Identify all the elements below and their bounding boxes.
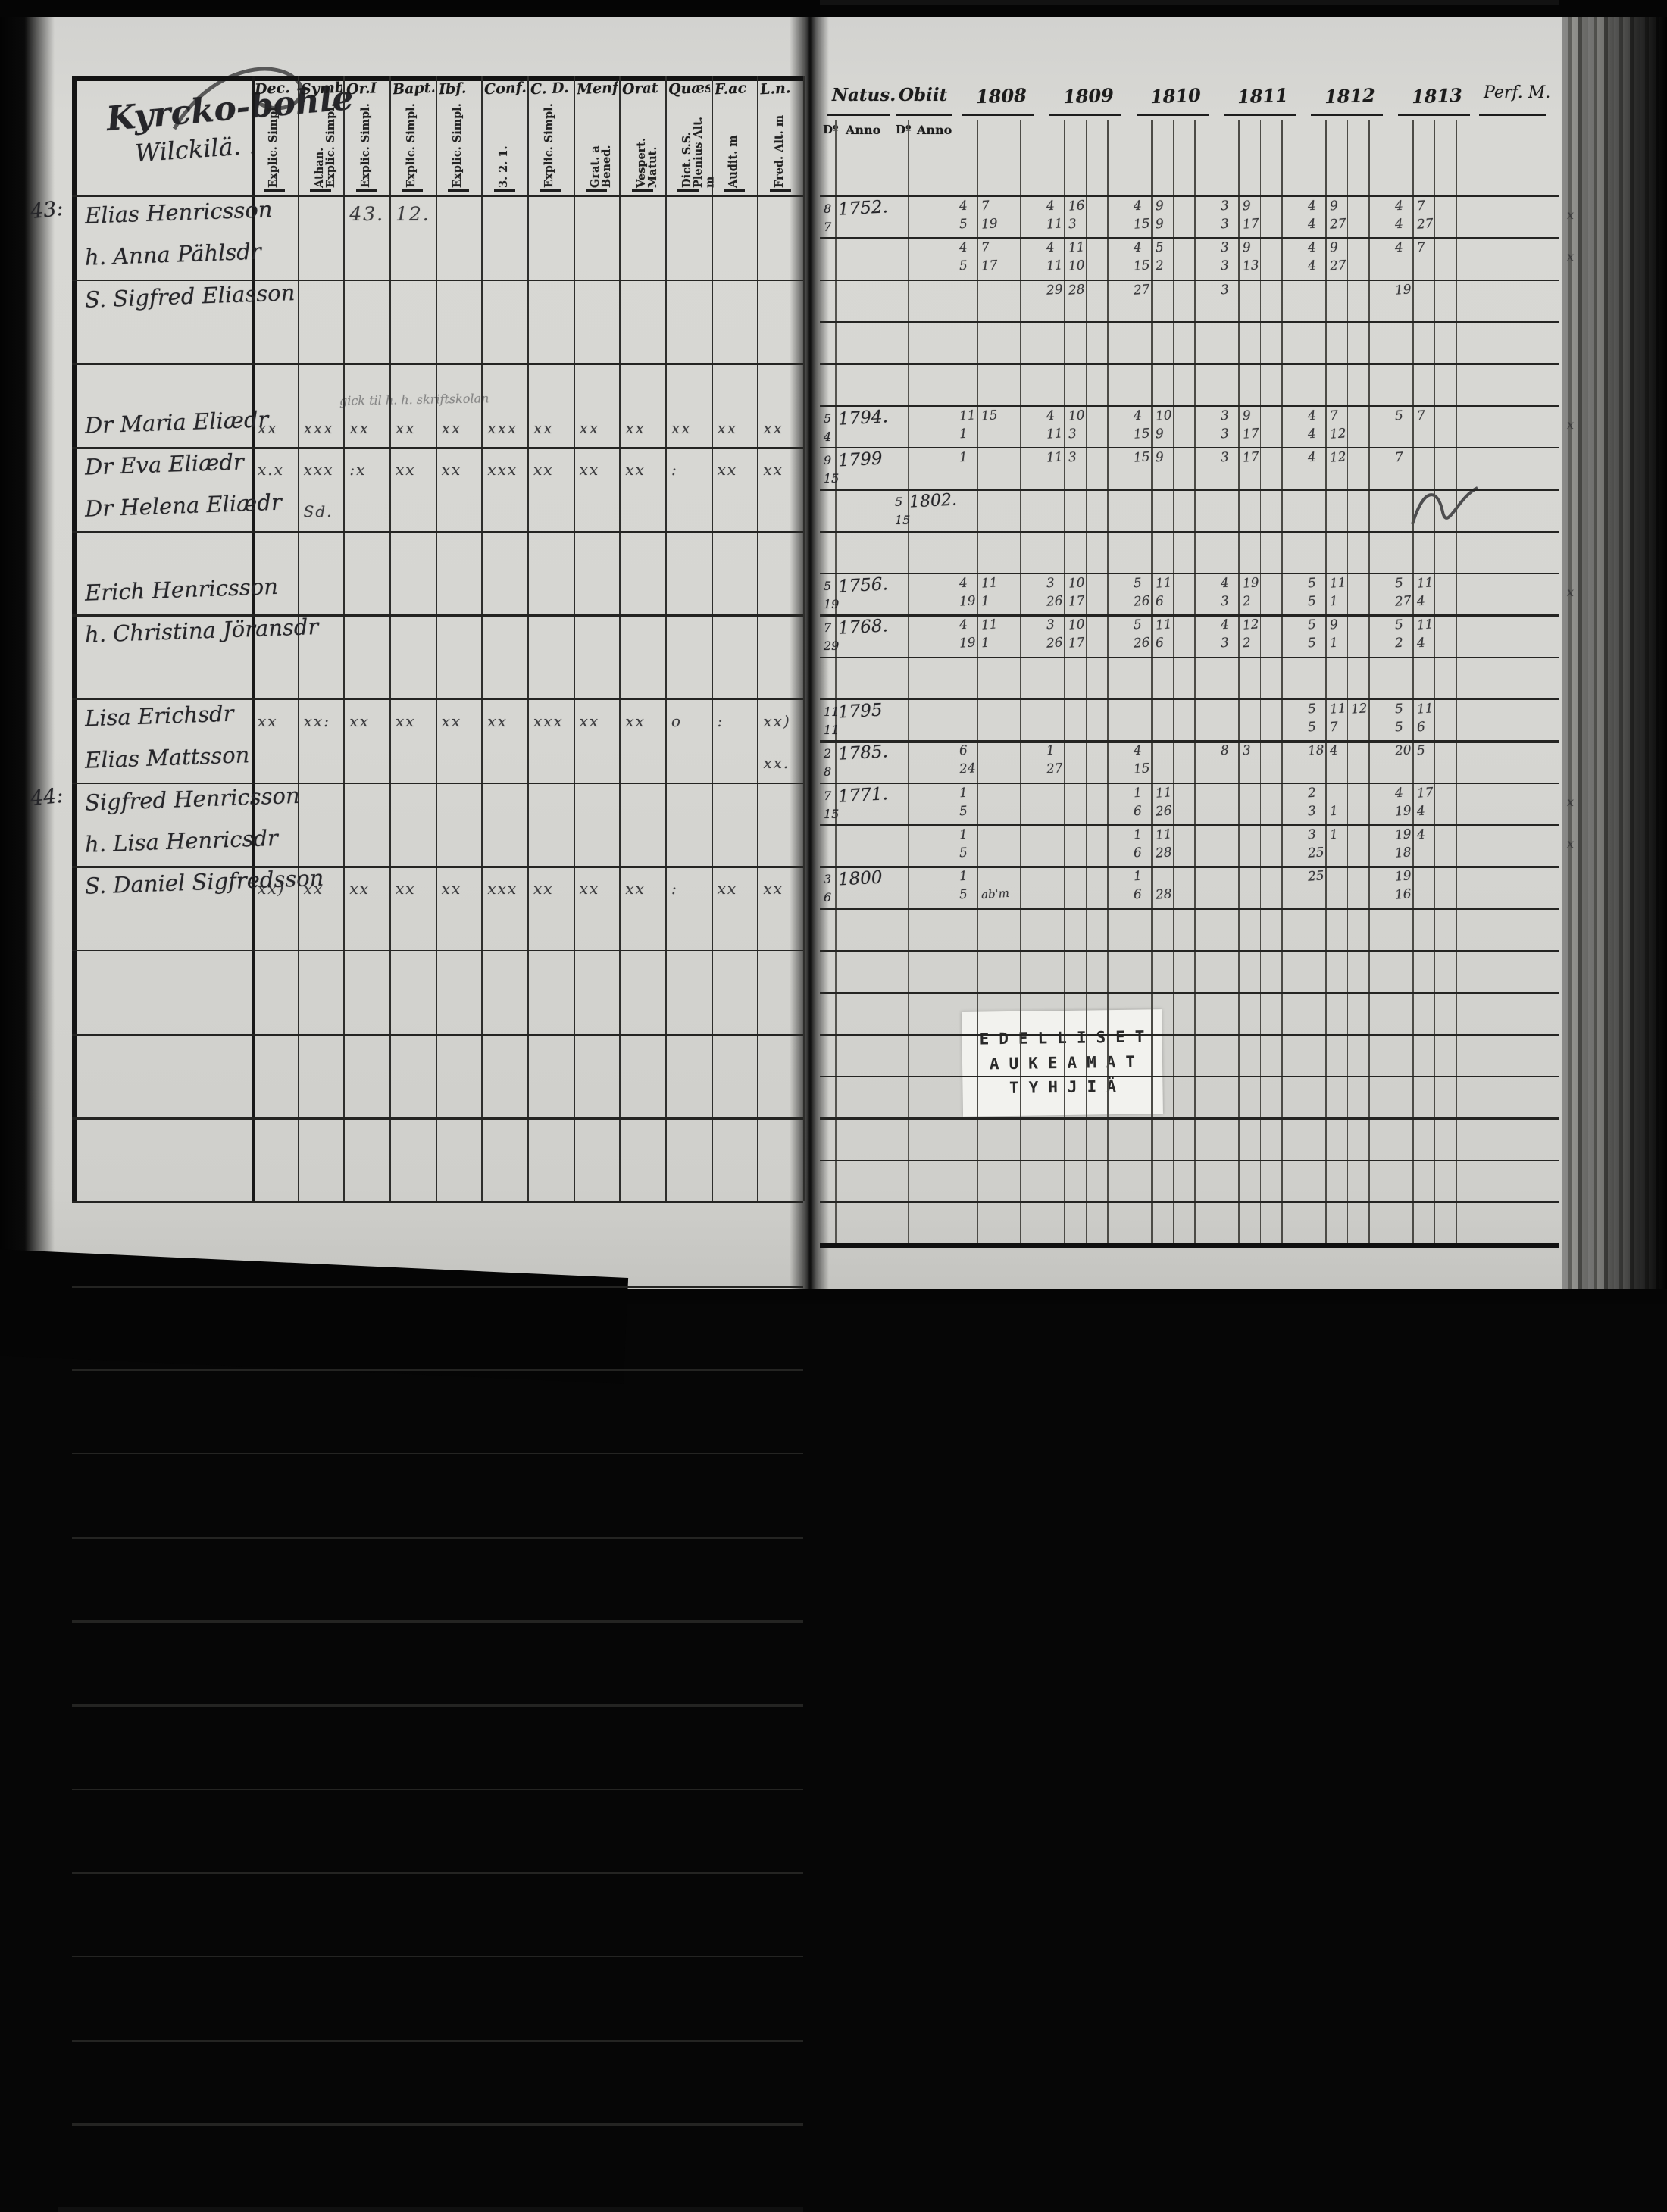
communion-date: 4: [959, 576, 968, 592]
natus-header: Natus.: [832, 85, 896, 105]
communion-date: 4: [1307, 258, 1316, 274]
communion-date: 19: [980, 216, 998, 232]
grid-hline: [72, 1956, 803, 1957]
communion-date: 11: [980, 575, 998, 591]
grid-hline: [820, 405, 1559, 407]
natus-year: 1768.: [837, 617, 888, 639]
natus-year: 1794.: [837, 407, 888, 429]
person-name: Sigfred Henricsson: [84, 784, 248, 815]
obiit-day: 5: [895, 495, 902, 509]
communion-date: 4: [1307, 240, 1316, 256]
column-header-tick: [448, 189, 469, 192]
book-left-edge: [0, 0, 55, 1304]
communion-date: 16: [1068, 198, 1085, 214]
communion-date: 5: [1133, 617, 1142, 633]
communion-date: 5: [1133, 576, 1142, 592]
communion-date: 3: [1242, 743, 1251, 759]
edge-check-mark: x: [1567, 836, 1574, 851]
year-subcolumn-line: [1412, 120, 1414, 1243]
communion-date: 5: [1307, 720, 1316, 736]
column-header-symb: Symb.: [300, 80, 342, 98]
communion-date: 5: [1394, 701, 1403, 717]
year-subcolumn-line: [1238, 120, 1240, 1243]
obiit-year: 1802.: [909, 491, 957, 512]
column-subheader: Athan. Explic. Simpl.: [314, 103, 336, 188]
grid-hline: [72, 1286, 803, 1289]
communion-date: 17: [1242, 426, 1259, 442]
communion-date: 3: [1220, 408, 1229, 423]
grid-hline: [820, 950, 1559, 953]
assessment-mark: xx: [349, 712, 370, 730]
communion-date: 1: [1133, 869, 1142, 885]
year-header-1808: 1808: [976, 84, 1027, 108]
year-subcolumn-line: [1456, 120, 1457, 1243]
year-header-1810: 1810: [1150, 84, 1202, 108]
year-subcolumn-line: [1281, 120, 1283, 1243]
stamp-line-2: AUKEAMAT: [980, 1049, 1146, 1076]
communion-date: 4: [959, 240, 968, 256]
communion-date: 4: [1329, 743, 1338, 759]
assessment-mark: xx: [396, 879, 416, 898]
communion-date: 17: [1068, 636, 1085, 651]
year-subcolumn-line: [1064, 120, 1065, 1243]
year-header-1812: 1812: [1325, 84, 1376, 108]
column-header-dec: Dec.: [254, 80, 296, 98]
year-subcolumn-line: [1151, 120, 1153, 1243]
communion-date: 2: [1242, 636, 1251, 651]
communion-date: 10: [1068, 617, 1085, 633]
book-fore-edge: [1562, 0, 1667, 1304]
grid-vline: [343, 76, 345, 1201]
communion-date: 15: [1133, 761, 1150, 777]
communion-date: 5: [1307, 617, 1316, 633]
communion-date: 15: [980, 408, 998, 423]
grid-hline: [72, 531, 803, 533]
communion-date: 9: [1242, 198, 1251, 214]
grid-hline: [72, 2123, 803, 2125]
grid-hline: [72, 1789, 803, 1790]
communion-date: 27: [1133, 282, 1150, 298]
edge-check-mark: x: [1567, 585, 1574, 599]
communion-date: 3: [1220, 240, 1229, 256]
assessment-mark: xx: [533, 419, 554, 437]
communion-date: 3: [1068, 426, 1077, 442]
communion-date: 4: [1046, 240, 1055, 256]
assessment-mark: xx: [718, 419, 738, 437]
communion-date: 5: [1394, 576, 1403, 592]
communion-date: 19: [959, 636, 976, 651]
column-subheader: Grat. a Bened.: [590, 103, 612, 188]
communion-date: 11: [1155, 617, 1172, 633]
assessment-mark: xx: [442, 879, 462, 898]
communion-date: 11: [1329, 575, 1346, 591]
edge-check-mark: x: [1567, 208, 1574, 222]
natus-year: 1799: [837, 448, 883, 470]
communion-date: 10: [1068, 408, 1085, 423]
natus-day-2: 15: [824, 807, 839, 821]
communion-date: 3: [1046, 576, 1055, 592]
assessment-mark: xx: [487, 712, 508, 730]
natus-day: 3: [824, 872, 831, 886]
communion-date: 10: [1155, 408, 1172, 423]
communion-date: 26: [1133, 593, 1150, 609]
column-subheader: Explic. Simpl.: [543, 103, 555, 188]
assessment-mark: xx: [625, 419, 646, 437]
column-subheader: Explic. Simpl.: [405, 103, 417, 188]
assessment-mark: xx: [396, 419, 416, 437]
communion-date: 1: [959, 426, 968, 442]
natus-year: 1771.: [837, 784, 888, 806]
year-subcolumn-line: [1325, 120, 1327, 1243]
communion-date: 1: [1329, 594, 1338, 610]
grid-hline: [820, 698, 1559, 700]
edge-check-mark: x: [1567, 795, 1574, 809]
grid-hline: [820, 866, 1559, 867]
communion-date: 10: [1068, 575, 1085, 591]
year-underline: [1311, 114, 1383, 116]
communion-date: 6: [1133, 803, 1142, 819]
communion-date: 26: [1155, 803, 1172, 819]
grid-hline: [820, 657, 1559, 658]
communion-date: 4: [1416, 803, 1425, 819]
grid-hline: [820, 908, 1559, 910]
communion-date: 4: [1394, 217, 1403, 233]
communion-date: 3: [1220, 450, 1229, 466]
communion-date: 9: [1329, 198, 1338, 214]
assessment-mark: xx.: [763, 754, 790, 772]
column-header-qust: Quæst.: [668, 80, 710, 98]
grid-vline: [665, 76, 667, 1201]
left-table-left-border: [72, 76, 77, 1201]
communion-date: 4: [1416, 827, 1425, 843]
grid-hline: [820, 740, 1559, 743]
communion-date: 25: [1307, 845, 1325, 861]
communion-date: 4: [1307, 450, 1316, 466]
assessment-mark: xx: [763, 461, 783, 479]
communion-date: 7: [980, 240, 990, 256]
grid-hline: [72, 363, 803, 364]
assessment-mark: :: [671, 461, 678, 479]
communion-date: 1: [959, 827, 968, 843]
communion-date: 4: [1133, 240, 1142, 256]
grid-hline: [72, 783, 803, 784]
grid-hline: [820, 321, 1559, 324]
communion-date: 19: [1394, 282, 1412, 298]
grid-hline: [820, 280, 1559, 281]
communion-date: 4: [1307, 426, 1316, 442]
natus-year: 1800: [837, 868, 883, 890]
column-subheader: Dict. S.S. Plenius Alt. m: [681, 103, 716, 188]
communion-date: 4: [1307, 198, 1316, 214]
assessment-mark: xxx: [487, 419, 518, 437]
communion-date: 9: [1242, 408, 1251, 423]
grid-hline: [820, 614, 1559, 616]
communion-date: 9: [1155, 198, 1164, 214]
column-header-cd: C. D.: [530, 80, 572, 98]
communion-date: 4: [1394, 785, 1403, 801]
grid-vline: [803, 76, 805, 1201]
natus-day-2: 7: [824, 220, 831, 234]
assessment-mark: xx: [533, 879, 554, 898]
grid-hline: [820, 363, 1559, 364]
communion-date: 5: [1155, 240, 1164, 256]
natus-day-2: 8: [824, 764, 831, 779]
communion-date: 5: [1307, 594, 1316, 610]
natus-day: 7: [824, 620, 831, 635]
communion-date: 19: [1394, 869, 1412, 885]
natus-day: 9: [824, 453, 831, 467]
natus-day: 2: [824, 746, 831, 761]
year-subcolumn-line: [1347, 120, 1349, 1243]
communion-date: 15: [1133, 216, 1150, 232]
assessment-mark: xx: [580, 419, 600, 437]
margin-number: 44:: [29, 783, 64, 810]
communion-date: 1: [1329, 803, 1338, 819]
person-name: Dr Maria Eliædr: [84, 407, 248, 438]
assessment-mark: xx: [533, 461, 554, 479]
communion-date: 26: [1133, 636, 1150, 651]
column-header-ori: Or.I: [346, 80, 389, 98]
communion-date: 11: [1416, 575, 1434, 591]
natus-day-2: 19: [824, 597, 839, 611]
natus-day: 5: [824, 411, 831, 426]
year-header-1809: 1809: [1063, 84, 1115, 108]
grid-vline: [574, 76, 575, 1201]
assessment-mark: xx: [258, 712, 278, 730]
assessment-mark: :: [671, 879, 678, 898]
person-name: Lisa Erichsdr: [84, 701, 234, 732]
communion-date: 11: [1046, 216, 1063, 232]
year-underline: [1224, 114, 1296, 116]
column-header-tick: [540, 189, 561, 192]
column-header-tick: [770, 189, 791, 192]
natus-day-2: 4: [824, 430, 831, 444]
communion-date: 3: [1220, 282, 1229, 298]
natus-day-2: 29: [824, 639, 839, 653]
communion-date: 17: [1416, 785, 1434, 801]
column-header-tick: [402, 189, 423, 192]
archive-stamp: EDELLISET AUKEAMAT TYHJIÄ: [962, 1009, 1163, 1117]
communion-date: 4: [959, 198, 968, 214]
year-subcolumn-line: [1086, 120, 1087, 1243]
grid-hline: [72, 1201, 803, 1203]
natus-day-2: 6: [824, 890, 831, 904]
communion-date: 27: [1046, 761, 1063, 777]
grid-hline: [72, 950, 803, 951]
communion-date: 11: [1046, 426, 1063, 442]
communion-date: 19: [1394, 803, 1412, 819]
assessment-mark: xx): [763, 712, 790, 730]
communion-date: 11: [1155, 785, 1172, 801]
column-subheader: Explic. Simpl.: [267, 103, 279, 188]
communion-date: 25: [1307, 869, 1325, 885]
communion-date: 11: [1068, 240, 1085, 256]
year-underline: [962, 114, 1034, 116]
communion-date: 4: [1133, 408, 1142, 423]
obiit-underline: [896, 114, 952, 116]
communion-date: 4: [959, 617, 968, 633]
grid-hline: [820, 1034, 1559, 1036]
perf-header: Perf. M.: [1484, 83, 1550, 102]
grid-vline: [527, 76, 529, 1201]
column-header-tick: [677, 189, 699, 192]
communion-date: 4: [1220, 576, 1229, 592]
communion-date: 3: [1220, 258, 1229, 274]
grid-vline: [481, 76, 483, 1201]
communion-date: 29: [1046, 282, 1063, 298]
right-table-top-border: [820, 0, 1559, 5]
communion-date: 13: [1242, 258, 1259, 274]
column-header-tick: [356, 189, 377, 192]
communion-date: 9: [1329, 240, 1338, 256]
assessment-mark: :x: [349, 461, 366, 479]
assessment-mark: xx: [349, 879, 370, 898]
year-subcolumn-line: [1194, 120, 1196, 1243]
assessment-mark: xx: [625, 879, 646, 898]
bottom-black-border: [0, 1289, 1667, 1304]
communion-date: 5: [1416, 743, 1425, 759]
column-subheader: Explic. Simpl.: [360, 103, 371, 188]
assessment-mark: xx: [442, 712, 462, 730]
communion-date: 18: [1307, 743, 1325, 759]
grid-hline: [72, 2040, 803, 2042]
column-subheader: Fred. Alt. m: [774, 103, 785, 188]
year-subcolumn-line: [1368, 120, 1370, 1243]
communion-date: 9: [1155, 450, 1164, 466]
communion-date: 24: [959, 761, 976, 777]
assessment-mark: 43.: [349, 203, 384, 225]
column-subheader: Vespert. Matut.: [636, 103, 658, 188]
communion-date: 11: [1046, 449, 1063, 465]
communion-date: 1: [1133, 827, 1142, 843]
natus-year: 1752.: [837, 197, 888, 219]
communion-date: 7: [980, 198, 990, 214]
communion-date: 4: [1133, 743, 1142, 759]
communion-date: 20: [1394, 743, 1412, 759]
communion-date: 1: [980, 594, 990, 610]
grid-hline: [820, 531, 1559, 533]
year-subcolumn-line: [1173, 120, 1174, 1243]
communion-date: 4: [1394, 240, 1403, 256]
communion-date: 7: [1394, 450, 1403, 466]
communion-date: 2: [1307, 785, 1316, 801]
grid-hline: [72, 1453, 803, 1454]
communion-date: 28: [1155, 845, 1172, 861]
obiit-day-2: 15: [895, 513, 910, 527]
communion-date: 1: [1046, 743, 1055, 759]
year-underline: [1049, 114, 1121, 116]
assessment-mark: xx: [625, 712, 646, 730]
communion-date: 27: [1329, 216, 1346, 232]
grid-hline: [820, 1117, 1559, 1119]
communion-date: 4: [1046, 198, 1055, 214]
year-header-1811: 1811: [1237, 84, 1289, 108]
communion-date: 3: [1307, 827, 1316, 843]
assessment-mark: xx: [580, 879, 600, 898]
column-header-bapt: Bapt.: [392, 80, 434, 98]
grid-vline: [835, 120, 837, 1243]
communion-date: 7: [1416, 240, 1425, 256]
natus-year: 1795: [837, 700, 883, 722]
communion-date: 4: [1416, 636, 1425, 651]
communion-date: 6: [1133, 887, 1142, 903]
column-header-tick: [494, 189, 515, 192]
communion-date: 3: [1068, 450, 1077, 466]
communion-date: 17: [980, 258, 998, 274]
margin-number: 43:: [29, 197, 64, 223]
column-header-fac: F.ac: [714, 80, 756, 98]
year-subcolumn-line: [977, 120, 978, 1243]
grid-hline: [820, 1201, 1559, 1203]
edge-check-mark: x: [1567, 249, 1574, 264]
assessment-mark: xx: [258, 419, 278, 437]
communion-date: 3: [1220, 594, 1229, 610]
communion-date: 4: [1307, 217, 1316, 233]
communion-date: 17: [1242, 216, 1259, 232]
assessment-mark: xxx: [304, 419, 334, 437]
faint-annotation: gick til h. h. skriftskolan: [339, 391, 489, 408]
communion-date: 2: [1155, 258, 1164, 274]
communion-date: 19: [1394, 826, 1412, 842]
grid-hline: [58, 2207, 803, 2212]
grid-hline: [820, 237, 1559, 239]
assessment-mark: xxx: [533, 712, 564, 730]
communion-date: 28: [1068, 282, 1085, 298]
assessment-mark: xx: [718, 461, 738, 479]
communion-date: 4: [1416, 594, 1425, 610]
grid-hline: [72, 280, 803, 281]
communion-date: 1: [959, 450, 968, 466]
communion-date: 7: [1329, 408, 1338, 423]
communion-date: 11: [1416, 701, 1434, 717]
communion-date: 26: [1046, 593, 1063, 609]
assessment-mark: x.x: [258, 461, 284, 479]
communion-date: 11: [1155, 826, 1172, 842]
column-header-tick: [264, 189, 285, 192]
communion-date: 11: [959, 408, 976, 423]
communion-date: 9: [1329, 617, 1338, 633]
assessment-mark: xx: [671, 419, 692, 437]
natus-year: 1785.: [837, 742, 888, 764]
column-header-ibf: Ibf.: [438, 80, 480, 98]
grid-vline: [757, 76, 758, 1201]
grid-hline: [820, 1076, 1559, 1077]
grid-hline: [820, 1243, 1559, 1248]
communion-date: 15: [1133, 426, 1150, 442]
natus-underline: [827, 114, 890, 116]
communion-date: 6: [959, 743, 968, 759]
communion-date: 1: [980, 636, 990, 651]
communion-date: 4: [1133, 198, 1142, 214]
natus-day-2: 11: [824, 723, 839, 737]
obiit-header: Obiit: [899, 85, 947, 105]
grid-vline: [712, 76, 713, 1201]
communion-date: 3: [1220, 217, 1229, 233]
grid-hline: [72, 698, 803, 700]
communion-date: 8: [1220, 743, 1229, 759]
stamp-line-1: EDELLISET: [969, 1024, 1154, 1051]
natus-day: 8: [824, 202, 831, 216]
communion-date: 4: [1394, 198, 1403, 214]
communion-date: 12: [1242, 617, 1259, 633]
communion-date: 27: [1394, 593, 1412, 609]
year-subcolumn-line: [1020, 120, 1021, 1243]
assessment-mark: xx: [763, 879, 783, 898]
communion-date: 5: [959, 845, 968, 861]
grid-hline: [72, 195, 803, 197]
year-subcolumn-line: [999, 120, 1000, 1243]
book-photo: { "colors": { "paper":"#d6d6d2", "ink":"…: [0, 0, 1667, 1304]
